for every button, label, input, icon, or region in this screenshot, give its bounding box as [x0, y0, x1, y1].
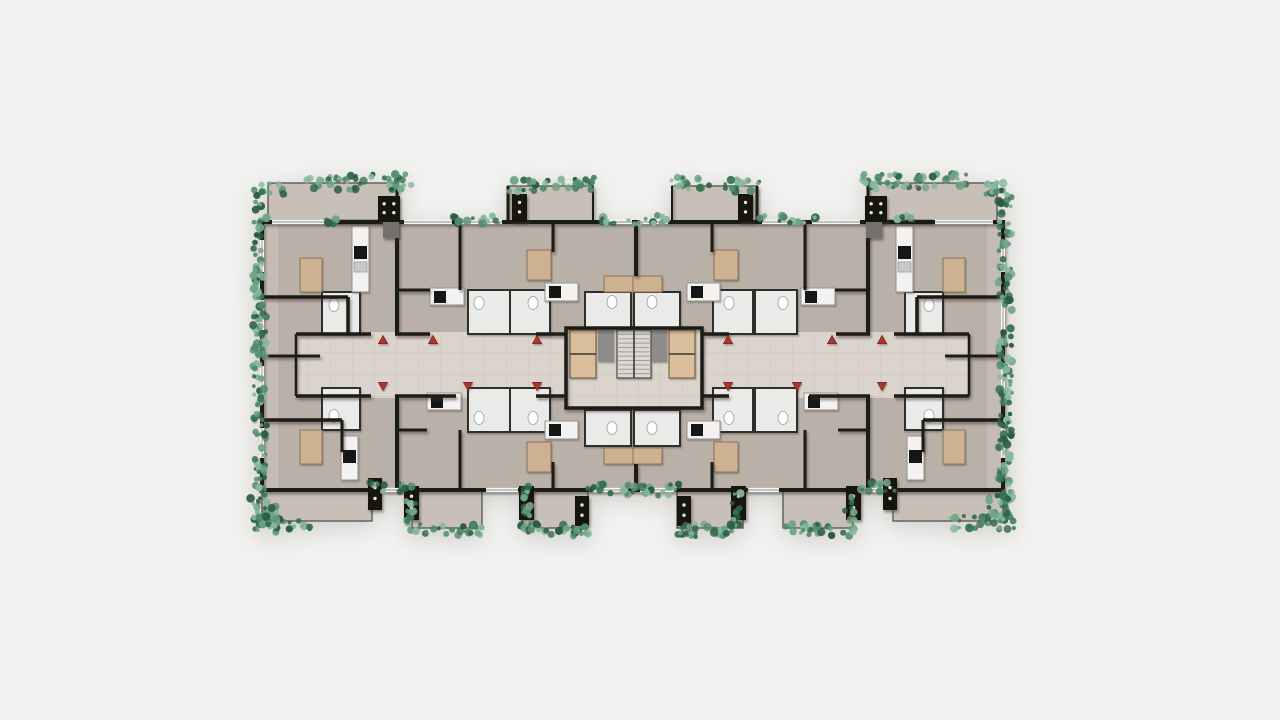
hedge-plant — [563, 525, 570, 532]
hedge-plant — [660, 489, 665, 494]
hedge-plant — [252, 374, 256, 378]
hedge-plant — [402, 171, 408, 177]
hedge-plant — [787, 220, 793, 226]
hedge-plant — [669, 178, 673, 182]
hedge-plant — [258, 301, 266, 309]
hedge-plant — [406, 516, 411, 521]
hedge-plant — [1000, 329, 1007, 336]
hedge-plant — [359, 177, 367, 185]
hedge-plant — [558, 176, 566, 184]
hedge-plant — [848, 495, 854, 501]
hedge-plant — [533, 520, 541, 528]
hedge-plant — [345, 180, 349, 184]
hedge-plant — [644, 217, 648, 221]
hedge-plant — [620, 487, 627, 494]
hedge-plant — [573, 180, 581, 188]
hedge-plant — [995, 385, 1004, 394]
hedge-plant — [965, 524, 974, 533]
hedge-plant — [529, 188, 533, 192]
bath-fixture — [607, 422, 617, 435]
wardrobe — [527, 442, 551, 472]
hedge-plant — [991, 183, 998, 190]
hedge-plant — [530, 178, 537, 185]
utility-box-dot — [744, 201, 747, 204]
cooktop — [354, 246, 367, 259]
hedge-plant — [253, 280, 260, 287]
utility-box — [677, 496, 691, 526]
hedge-plant — [972, 515, 977, 520]
hedge-plant — [267, 181, 271, 185]
utility-box-dot — [682, 503, 685, 506]
hedge-plant — [842, 508, 848, 514]
bath-fixture — [528, 412, 538, 425]
hedge-plant — [899, 214, 905, 220]
hedge-plant — [863, 180, 869, 186]
sink — [898, 262, 911, 272]
wardrobe — [300, 258, 322, 292]
hedge-plant — [258, 261, 264, 267]
bath-fixture — [724, 297, 734, 310]
hedge-plant — [394, 183, 399, 188]
hedge-plant — [257, 396, 264, 403]
bath-fixture — [778, 412, 788, 425]
utility-box-dot — [879, 211, 882, 214]
hedge-plant — [1003, 354, 1012, 363]
hedge-plant — [552, 183, 561, 192]
hedge-plant — [997, 525, 1002, 530]
hedge-plant — [288, 521, 292, 525]
hedge-plant — [582, 176, 589, 183]
utility-box-dot — [580, 514, 583, 517]
hedge-plant — [1002, 240, 1010, 248]
floor-plan-drawing — [0, 0, 1280, 720]
hedge-plant — [607, 490, 613, 496]
hedge-plant — [1008, 412, 1013, 417]
utility-box-dot — [888, 497, 891, 500]
hedge-plant — [1006, 421, 1010, 425]
utility-box-dot — [373, 497, 376, 500]
hedge-plant — [1004, 229, 1010, 235]
hedge-plant — [261, 430, 269, 438]
bath-fixture — [724, 412, 734, 425]
hedge-plant — [673, 487, 677, 491]
hedge-plant — [588, 186, 595, 193]
hedge-plant — [460, 523, 466, 529]
hedge-plant — [368, 174, 374, 180]
hedge-plant — [265, 522, 271, 528]
hedge-plant — [723, 530, 730, 537]
hedge-plant — [1001, 435, 1005, 439]
utility-box-dot — [869, 211, 872, 214]
utility-box-dot — [392, 202, 395, 205]
hedge-plant — [296, 518, 302, 524]
hedge-plant — [570, 533, 576, 539]
hedge-plant — [249, 321, 257, 329]
wardrobe — [714, 250, 738, 280]
hedge-plant — [527, 513, 532, 518]
hedge-plant — [258, 444, 266, 452]
hedge-plant — [995, 443, 1003, 451]
cooktop — [434, 291, 446, 303]
hedge-plant — [333, 177, 337, 181]
floor-plan-page — [0, 0, 1280, 720]
hedge-plant — [258, 432, 262, 436]
wardrobe — [633, 276, 662, 292]
hedge-plant — [778, 212, 787, 221]
hedge-plant — [259, 324, 264, 329]
cooktop — [343, 450, 356, 463]
bathroom — [468, 388, 510, 432]
wardrobe — [633, 448, 662, 464]
hedge-plant — [1008, 427, 1014, 433]
hedge-plant — [253, 253, 258, 258]
decor-rect — [866, 222, 882, 238]
hedge-plant — [677, 182, 685, 190]
hedge-plant — [337, 176, 341, 180]
hedge-plant — [806, 532, 811, 537]
hedge-plant — [681, 176, 685, 180]
hedge-plant — [413, 501, 418, 506]
hedge-plant — [827, 526, 833, 532]
hedge-plant — [677, 484, 682, 489]
hedge-plant — [815, 523, 819, 527]
hedge-plant — [258, 248, 264, 254]
utility-box-dot — [518, 201, 521, 204]
hedge-plant — [565, 184, 572, 191]
hedge-plant — [256, 485, 262, 491]
hedge-plant — [262, 214, 271, 223]
hedge-plant — [896, 179, 901, 184]
hedge-plant — [995, 493, 1001, 499]
hedge-plant — [1004, 197, 1011, 204]
hedge-plant — [1006, 221, 1010, 225]
bathroom — [755, 388, 797, 432]
hedge-plant — [734, 179, 741, 186]
wardrobe — [527, 250, 551, 280]
bath-fixture — [647, 422, 657, 435]
hedge-plant — [996, 475, 1004, 483]
hedge-plant — [1003, 387, 1012, 396]
hedge-plant — [962, 514, 966, 518]
hedge-plant — [706, 182, 712, 188]
hedge-plant — [756, 181, 760, 185]
hedge-plant — [878, 480, 884, 486]
hedge-plant — [643, 489, 650, 496]
hedge-plant — [254, 333, 258, 337]
wardrobe — [943, 430, 965, 464]
hedge-plant — [861, 176, 866, 181]
hedge-plant — [306, 524, 313, 531]
cooktop — [805, 291, 817, 303]
hedge-plant — [262, 453, 266, 457]
wardrobe — [943, 258, 965, 292]
hedge-plant — [252, 393, 256, 397]
hedge-plant — [585, 486, 590, 491]
hedge-plant — [380, 488, 386, 494]
cooktop — [808, 396, 820, 408]
hedge-plant — [1003, 373, 1007, 377]
utility-box — [378, 196, 400, 222]
hedge-plant — [860, 488, 864, 492]
hedge-plant — [256, 500, 261, 505]
hedge-plant — [276, 181, 283, 188]
hedge-plant — [1007, 324, 1015, 332]
hedge-plant — [997, 232, 1002, 237]
hedge-plant — [478, 219, 486, 227]
hedge-plant — [250, 347, 257, 354]
hedge-plant — [999, 398, 1007, 406]
utility-box-dot — [682, 514, 685, 517]
hedge-plant — [1000, 256, 1007, 263]
hedge-plant — [603, 219, 609, 225]
hedge-plant — [303, 176, 310, 183]
hedge-plant — [883, 479, 891, 487]
hedge-plant — [268, 504, 276, 512]
hedge-plant — [1008, 334, 1014, 340]
hedge-plant — [747, 179, 751, 183]
hedge-plant — [252, 456, 259, 463]
hedge-plant — [258, 202, 262, 206]
hedge-plant — [733, 492, 737, 496]
hedge-plant — [730, 501, 735, 506]
utility-box-dot — [382, 211, 385, 214]
hedge-plant — [251, 274, 256, 279]
hedge-plant — [251, 187, 258, 194]
wardrobe — [604, 276, 633, 292]
utility-box — [865, 196, 887, 222]
hedge-plant — [555, 527, 563, 535]
hedge-plant — [253, 200, 258, 205]
hedge-plant — [1008, 379, 1013, 384]
bath-fixture — [329, 299, 339, 312]
hedge-plant — [266, 190, 272, 196]
hedge-plant — [1009, 204, 1013, 208]
hedge-plant — [263, 329, 268, 334]
hedge-plant — [409, 508, 417, 516]
hedge-plant — [964, 173, 968, 177]
bathroom — [634, 292, 680, 328]
wardrobe — [714, 442, 738, 472]
hedge-plant — [1009, 343, 1014, 348]
hedge-plant — [543, 528, 549, 534]
hedge-plant — [651, 220, 657, 226]
hedge-plant — [252, 365, 258, 371]
hedge-plant — [264, 422, 270, 428]
utility-box-dot — [888, 486, 891, 489]
hedge-plant — [694, 535, 698, 539]
hedge-plant — [352, 186, 358, 192]
hedge-plant — [727, 176, 735, 184]
hedge-plant — [694, 175, 702, 183]
hedge-plant — [998, 413, 1003, 418]
cooktop — [691, 424, 703, 436]
hedge-plant — [478, 525, 483, 530]
hedge-plant — [869, 181, 877, 189]
hedge-plant — [723, 186, 728, 191]
layer-core — [570, 330, 695, 378]
wardrobe — [300, 430, 322, 464]
cooktop — [909, 450, 922, 463]
wardrobe — [604, 448, 633, 464]
bath-fixture — [647, 296, 657, 309]
hedge-plant — [1008, 383, 1012, 387]
hedge-plant — [1003, 449, 1010, 456]
hedge-plant — [257, 476, 262, 481]
hedge-plant — [262, 315, 266, 319]
hedge-plant — [686, 187, 691, 192]
hedge-plant — [1006, 482, 1012, 488]
hedge-plant — [663, 216, 670, 223]
hedge-plant — [1002, 377, 1007, 382]
hedge-plant — [737, 524, 741, 528]
hedge-plant — [865, 487, 873, 495]
hedge-plant — [840, 530, 846, 536]
hedge-plant — [581, 523, 588, 530]
hedge-plant — [849, 501, 853, 505]
bath-fixture — [474, 412, 484, 425]
hedge-plant — [680, 525, 685, 530]
hedge-plant — [736, 489, 744, 497]
hedge-plant — [1010, 518, 1017, 525]
bath-fixture — [607, 296, 617, 309]
hedge-plant — [999, 179, 1007, 187]
hedge-plant — [907, 214, 915, 222]
hedge-plant — [984, 180, 992, 188]
hedge-plant — [1002, 510, 1010, 518]
hedge-plant — [1004, 525, 1012, 533]
hedge-plant — [884, 180, 890, 186]
hedge-plant — [262, 512, 270, 520]
hedge-plant — [443, 531, 449, 537]
hedge-plant — [905, 181, 910, 186]
hedge-plant — [256, 528, 260, 532]
hedge-plant — [398, 481, 402, 485]
hedge-plant — [736, 506, 742, 512]
bathroom — [510, 290, 550, 334]
utility-box-dot — [518, 210, 521, 213]
hedge-plant — [275, 510, 280, 515]
utility-box-dot — [869, 202, 872, 205]
hedge-plant — [996, 224, 1002, 230]
hedge-plant — [893, 489, 897, 493]
bathroom — [755, 290, 797, 334]
hedge-plant — [896, 173, 902, 179]
hedge-plant — [688, 531, 694, 537]
hedge-plant — [380, 481, 387, 488]
hedge-plant — [264, 498, 270, 504]
hedge-plant — [655, 493, 661, 499]
hedge-plant — [408, 182, 414, 188]
hedge-plant — [403, 498, 409, 504]
elevator-shaft-right — [651, 330, 667, 362]
cooktop — [431, 396, 443, 408]
hedge-plant — [1008, 306, 1016, 314]
hedge-plant — [389, 187, 394, 192]
hedge-plant — [692, 525, 699, 532]
hedge-plant — [259, 182, 265, 188]
hedge-plant — [828, 532, 835, 539]
hedge-plant — [876, 487, 884, 495]
hedge-plant — [997, 248, 1002, 253]
hedge-plant — [1006, 296, 1014, 304]
hedge-plant — [260, 465, 268, 473]
hedge-plant — [258, 496, 262, 500]
terrace-top-right — [868, 183, 997, 223]
hedge-plant — [326, 177, 331, 182]
utility-box-dot — [879, 202, 882, 205]
hedge-plant — [573, 527, 580, 534]
utility-box-dot — [744, 210, 747, 213]
hedge-plant — [636, 220, 643, 227]
hedge-plant — [988, 509, 997, 518]
hedge-plant — [997, 219, 1003, 225]
hedge-plant — [255, 223, 264, 232]
hedge-plant — [262, 357, 266, 361]
bath-fixture — [528, 297, 538, 310]
hedge-plant — [985, 497, 993, 505]
hedge-plant — [252, 240, 258, 246]
hedge-plant — [259, 273, 267, 281]
cooktop — [549, 286, 561, 298]
hedge-plant — [386, 176, 392, 182]
hedge-plant — [354, 174, 358, 178]
hedge-plant — [995, 345, 1002, 352]
hedge-plant — [1003, 424, 1008, 429]
hedge-plant — [687, 523, 693, 529]
hedge-plant — [747, 187, 755, 195]
hedge-plant — [255, 314, 259, 318]
hedge-plant — [310, 184, 318, 192]
hedge-plant — [849, 528, 856, 535]
hedge-plant — [723, 182, 727, 186]
hedge-plant — [756, 215, 763, 222]
hedge-plant — [520, 494, 528, 502]
hedge-plant — [997, 374, 1003, 380]
hedge-plant — [255, 402, 260, 407]
hedge-plant — [391, 170, 399, 178]
hedge-plant — [874, 174, 882, 182]
hedge-plant — [260, 385, 269, 394]
hedge-plant — [599, 481, 607, 489]
utility-box — [575, 496, 589, 526]
hedge-plant — [252, 268, 257, 273]
hedge-plant — [986, 521, 990, 525]
hedge-plant — [789, 528, 796, 535]
bathroom — [468, 290, 510, 334]
hedge-plant — [1010, 374, 1014, 378]
utility-box — [738, 194, 753, 222]
hedge-plant — [521, 188, 525, 192]
hedge-plant — [783, 523, 789, 529]
hedge-plant — [1004, 281, 1011, 288]
hedge-plant — [259, 189, 265, 195]
hedge-plant — [915, 185, 919, 189]
hedge-plant — [949, 174, 956, 181]
hedge-plant — [276, 520, 281, 525]
hedge-plant — [678, 531, 683, 536]
hedge-plant — [929, 173, 937, 181]
hedge-plant — [931, 183, 937, 189]
sink — [354, 262, 367, 272]
hedge-plant — [1012, 526, 1016, 530]
bath-fixture — [924, 299, 934, 312]
hedge-plant — [986, 505, 991, 510]
hedge-plant — [851, 509, 855, 513]
cooktop — [691, 286, 703, 298]
decor-rect — [383, 222, 399, 238]
hedge-plant — [868, 480, 875, 487]
hedge-plant — [884, 489, 888, 493]
